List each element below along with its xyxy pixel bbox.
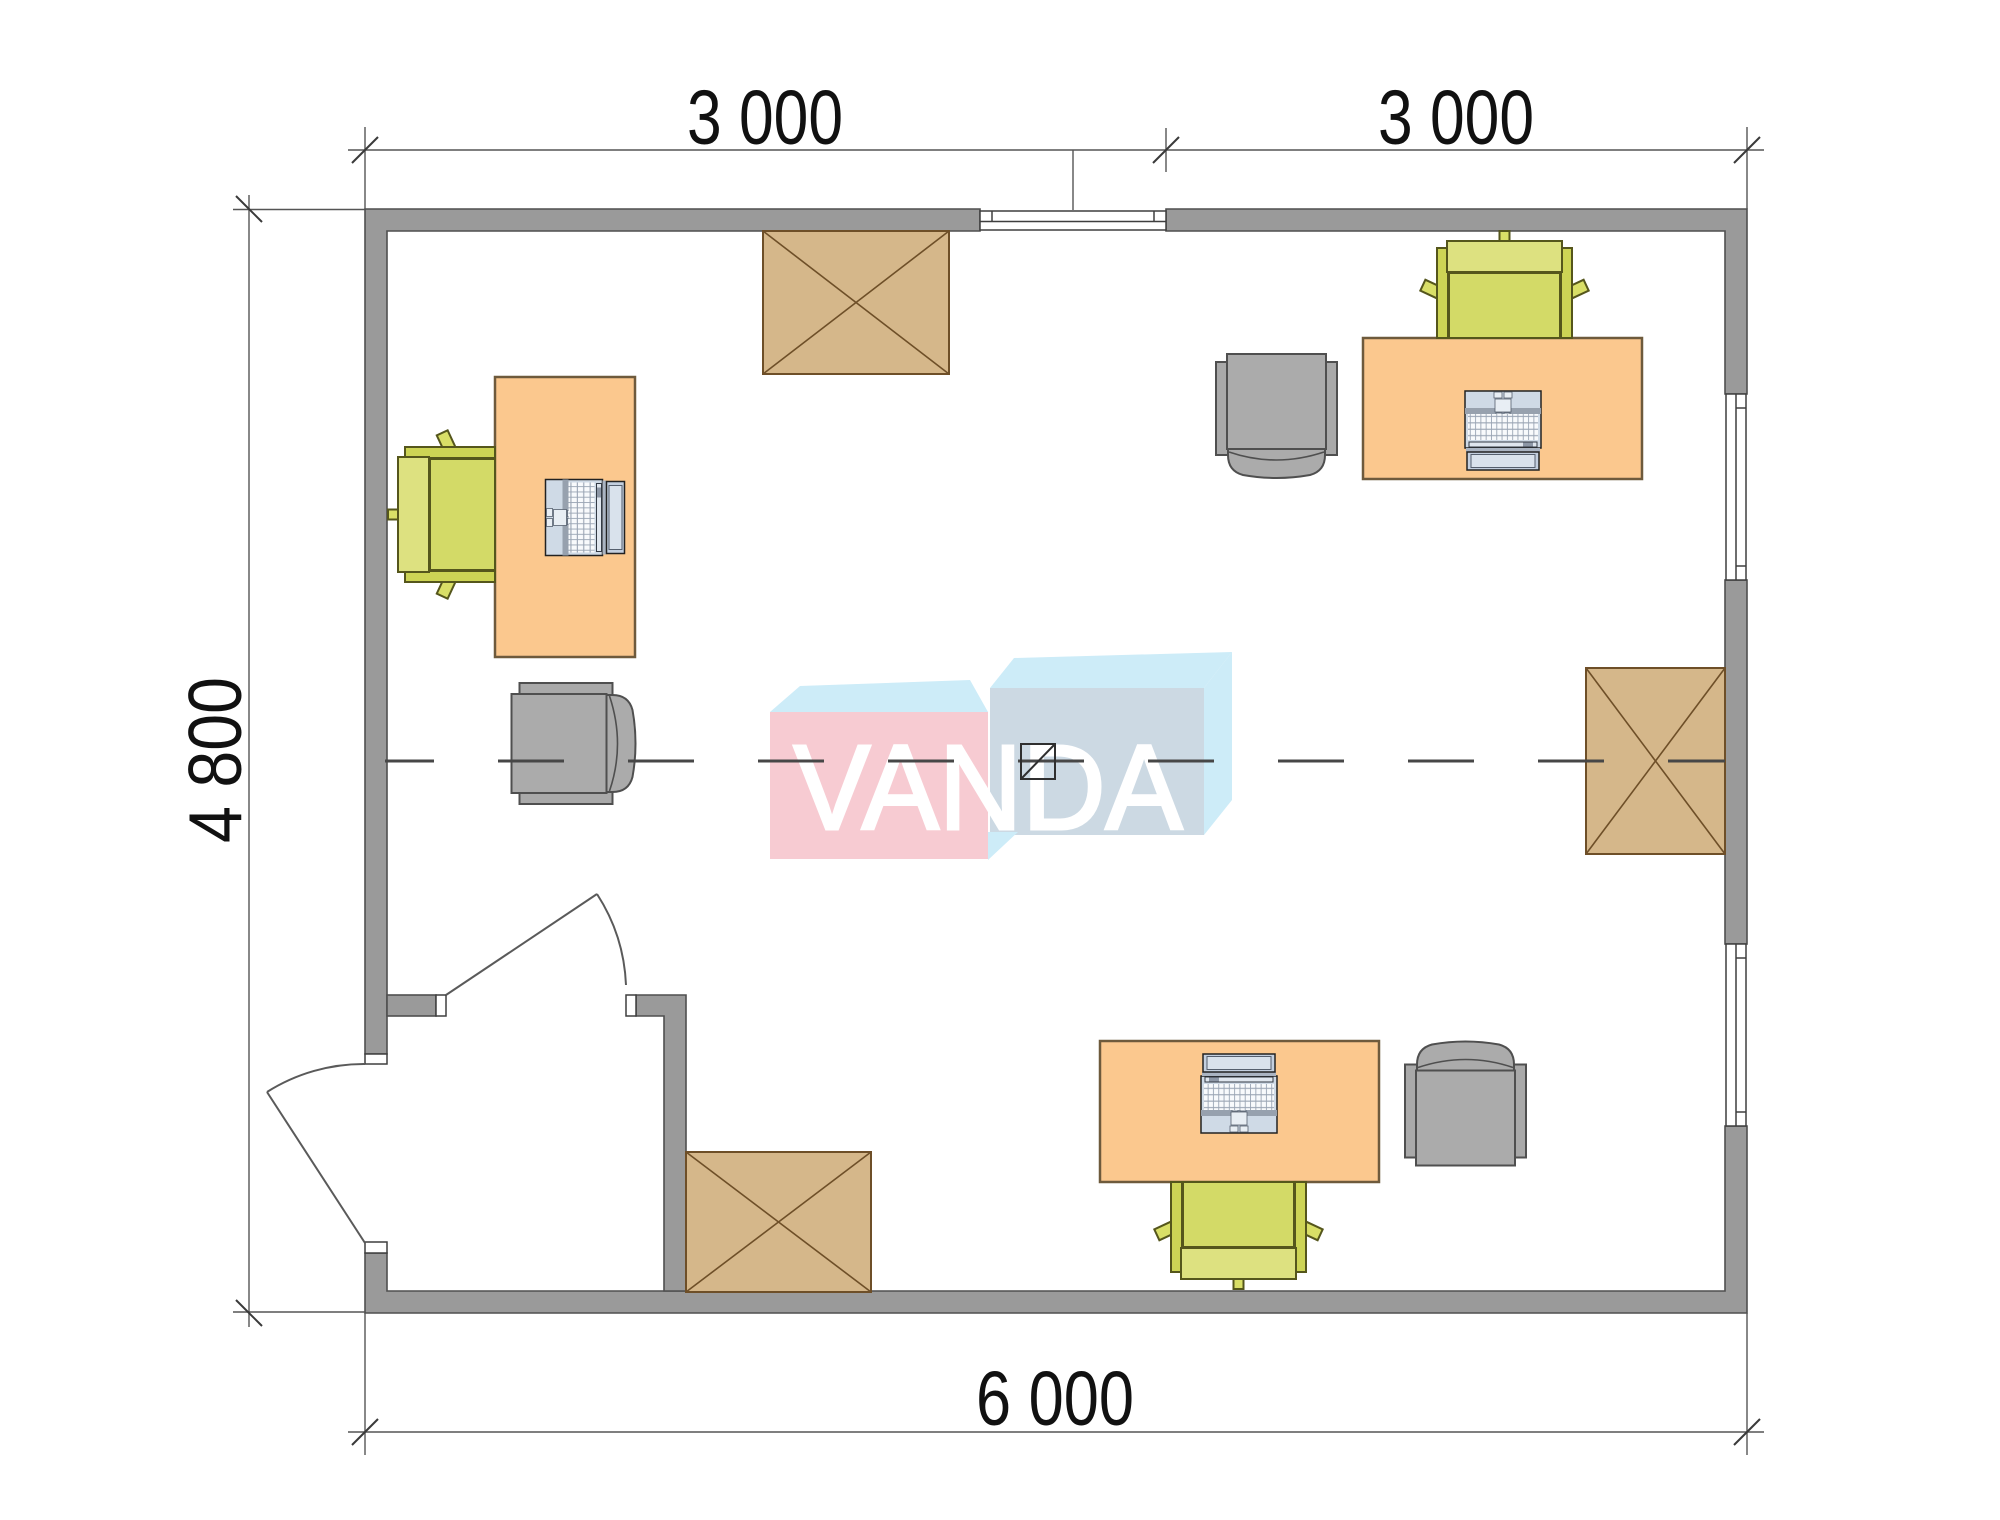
svg-text:6 000: 6 000 <box>976 1356 1134 1442</box>
svg-text:VANDA: VANDA <box>794 719 1183 855</box>
svg-text:4 800: 4 800 <box>173 677 257 843</box>
svg-text:3 000: 3 000 <box>1378 75 1534 161</box>
svg-text:3 000: 3 000 <box>687 75 843 161</box>
